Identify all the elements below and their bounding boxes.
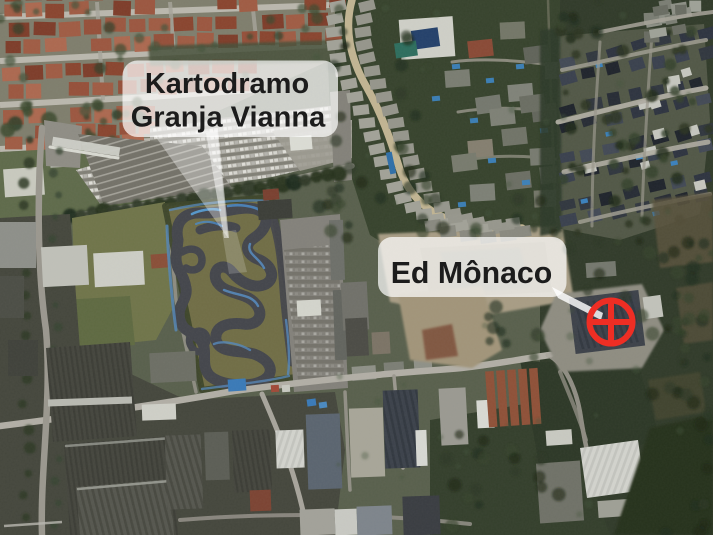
svg-text:Kartodramo: Kartodramo xyxy=(145,68,309,100)
svg-text:Granja Vianna: Granja Vianna xyxy=(131,102,326,134)
svg-text:Ed Mônaco: Ed Mônaco xyxy=(391,257,553,290)
